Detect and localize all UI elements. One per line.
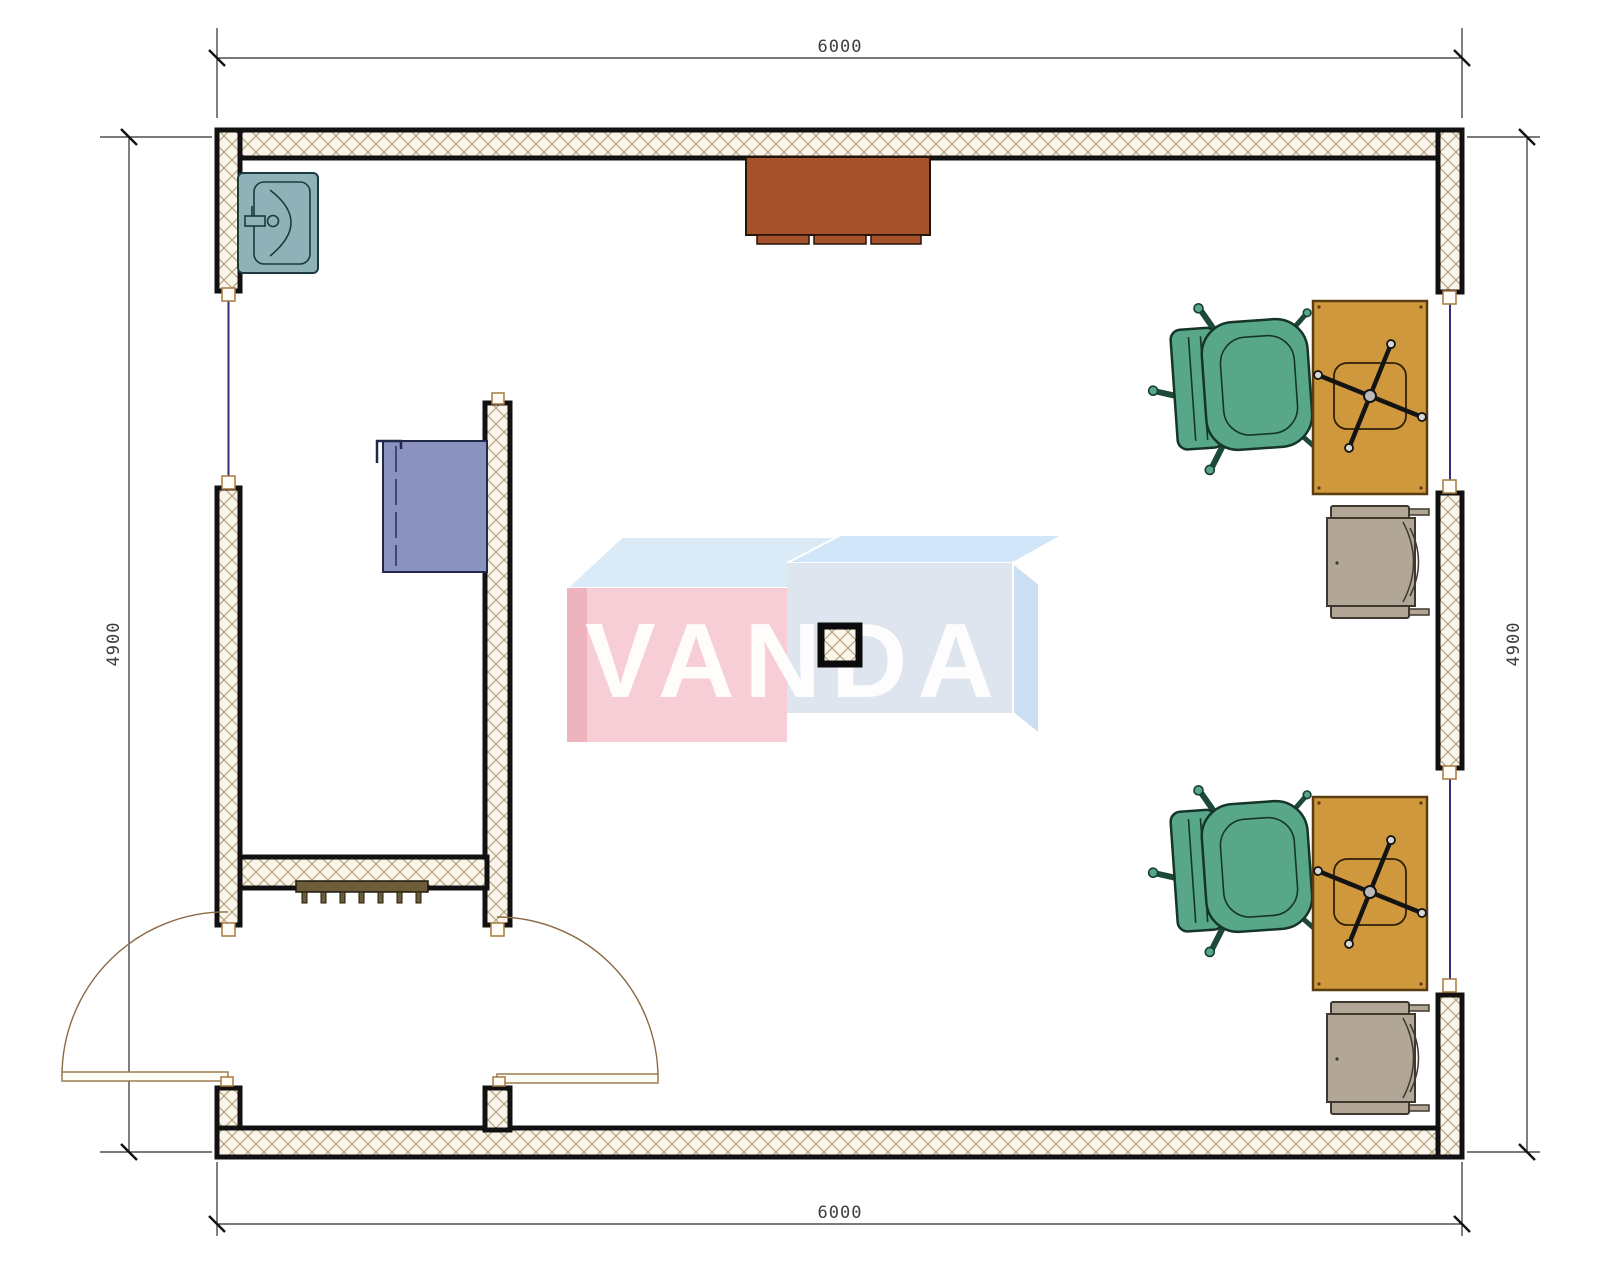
wall-left-middle — [217, 488, 240, 925]
column — [821, 626, 859, 664]
wall-right-lower — [1438, 995, 1462, 1157]
floor-plan-canvas: VANDA — [0, 0, 1600, 1280]
window-sill-mark — [222, 288, 235, 301]
wall-right-upper — [1438, 130, 1462, 292]
wall-cabinet — [746, 157, 930, 244]
radiator — [296, 881, 428, 903]
door-swing-arc-right — [497, 917, 658, 1078]
dimension-right-label: 4900 — [1504, 622, 1524, 667]
watermark: VANDA — [567, 535, 1063, 742]
wall-top — [217, 130, 1462, 158]
cabinet-foot — [757, 235, 809, 244]
workstation-2 — [1143, 778, 1448, 1114]
sink — [238, 173, 318, 273]
dimension-top-label: 6000 — [818, 37, 863, 57]
gray-armchair-1 — [1327, 506, 1429, 618]
window-sill-mark — [1443, 291, 1456, 304]
wall-right-middle — [1438, 493, 1462, 768]
gray-armchair-2 — [1327, 1002, 1429, 1114]
watermark-right-block-side — [1013, 563, 1039, 734]
green-armchair-2 — [1143, 778, 1322, 960]
watermark-text: VANDA — [585, 602, 1004, 720]
blue-cabinet — [377, 441, 487, 572]
window-sill-mark — [222, 476, 235, 489]
sink-drain — [268, 216, 279, 227]
door-leaf-right — [497, 1074, 658, 1083]
wall-partition-door-jamb — [485, 1088, 510, 1130]
window-sill-mark — [1443, 766, 1456, 779]
door-jamb-mark — [491, 923, 504, 936]
sink-faucet — [245, 216, 265, 226]
wall-partition-vertical — [485, 403, 510, 925]
door-leaf-left — [62, 1072, 228, 1081]
doors — [62, 912, 658, 1086]
cabinet-foot — [871, 235, 921, 244]
dimension-bottom — [209, 1162, 1470, 1236]
desk-2 — [1292, 797, 1448, 990]
desk-1 — [1292, 301, 1448, 494]
wall-bottom — [217, 1128, 1462, 1157]
watermark-left-block-side — [567, 588, 587, 742]
wall-left-upper — [217, 130, 240, 291]
green-armchair-1 — [1143, 296, 1322, 478]
door-jamb-mark — [222, 923, 235, 936]
window-sill-mark — [1443, 979, 1456, 992]
floor-plan-page: VANDA — [0, 0, 1600, 1280]
dimension-left-label: 4900 — [104, 622, 124, 667]
door-hinge-left — [221, 1077, 233, 1086]
door-hinge-right — [493, 1077, 505, 1086]
dimension-bottom-label: 6000 — [818, 1203, 863, 1223]
cabinet-foot — [814, 235, 866, 244]
partition-end-mark — [492, 393, 504, 404]
workstation-1 — [1143, 296, 1448, 618]
door-swing-arc-left — [62, 912, 228, 1076]
window-sill-mark — [1443, 480, 1456, 493]
